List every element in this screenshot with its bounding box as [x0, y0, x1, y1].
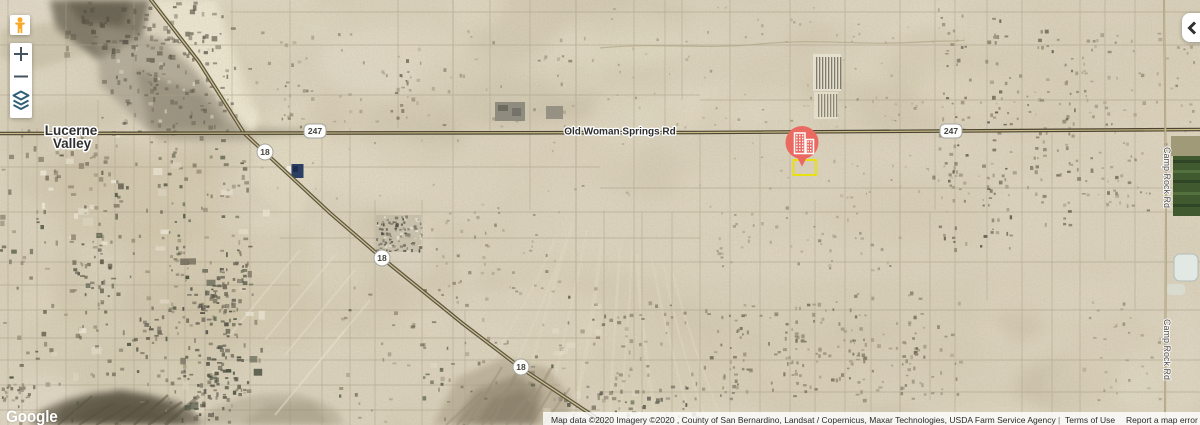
- svg-text:18: 18: [516, 362, 526, 372]
- svg-text:Valley: Valley: [53, 136, 92, 151]
- svg-text:247: 247: [308, 126, 322, 136]
- svg-text:Camp Rock Rd: Camp Rock Rd: [1162, 147, 1172, 208]
- svg-text:Camp Rock Rd: Camp Rock Rd: [1162, 319, 1172, 380]
- svg-text:18: 18: [260, 147, 270, 157]
- svg-text:Old Woman Springs Rd: Old Woman Springs Rd: [564, 127, 675, 138]
- svg-text:247: 247: [944, 126, 958, 136]
- svg-text:18: 18: [377, 253, 387, 263]
